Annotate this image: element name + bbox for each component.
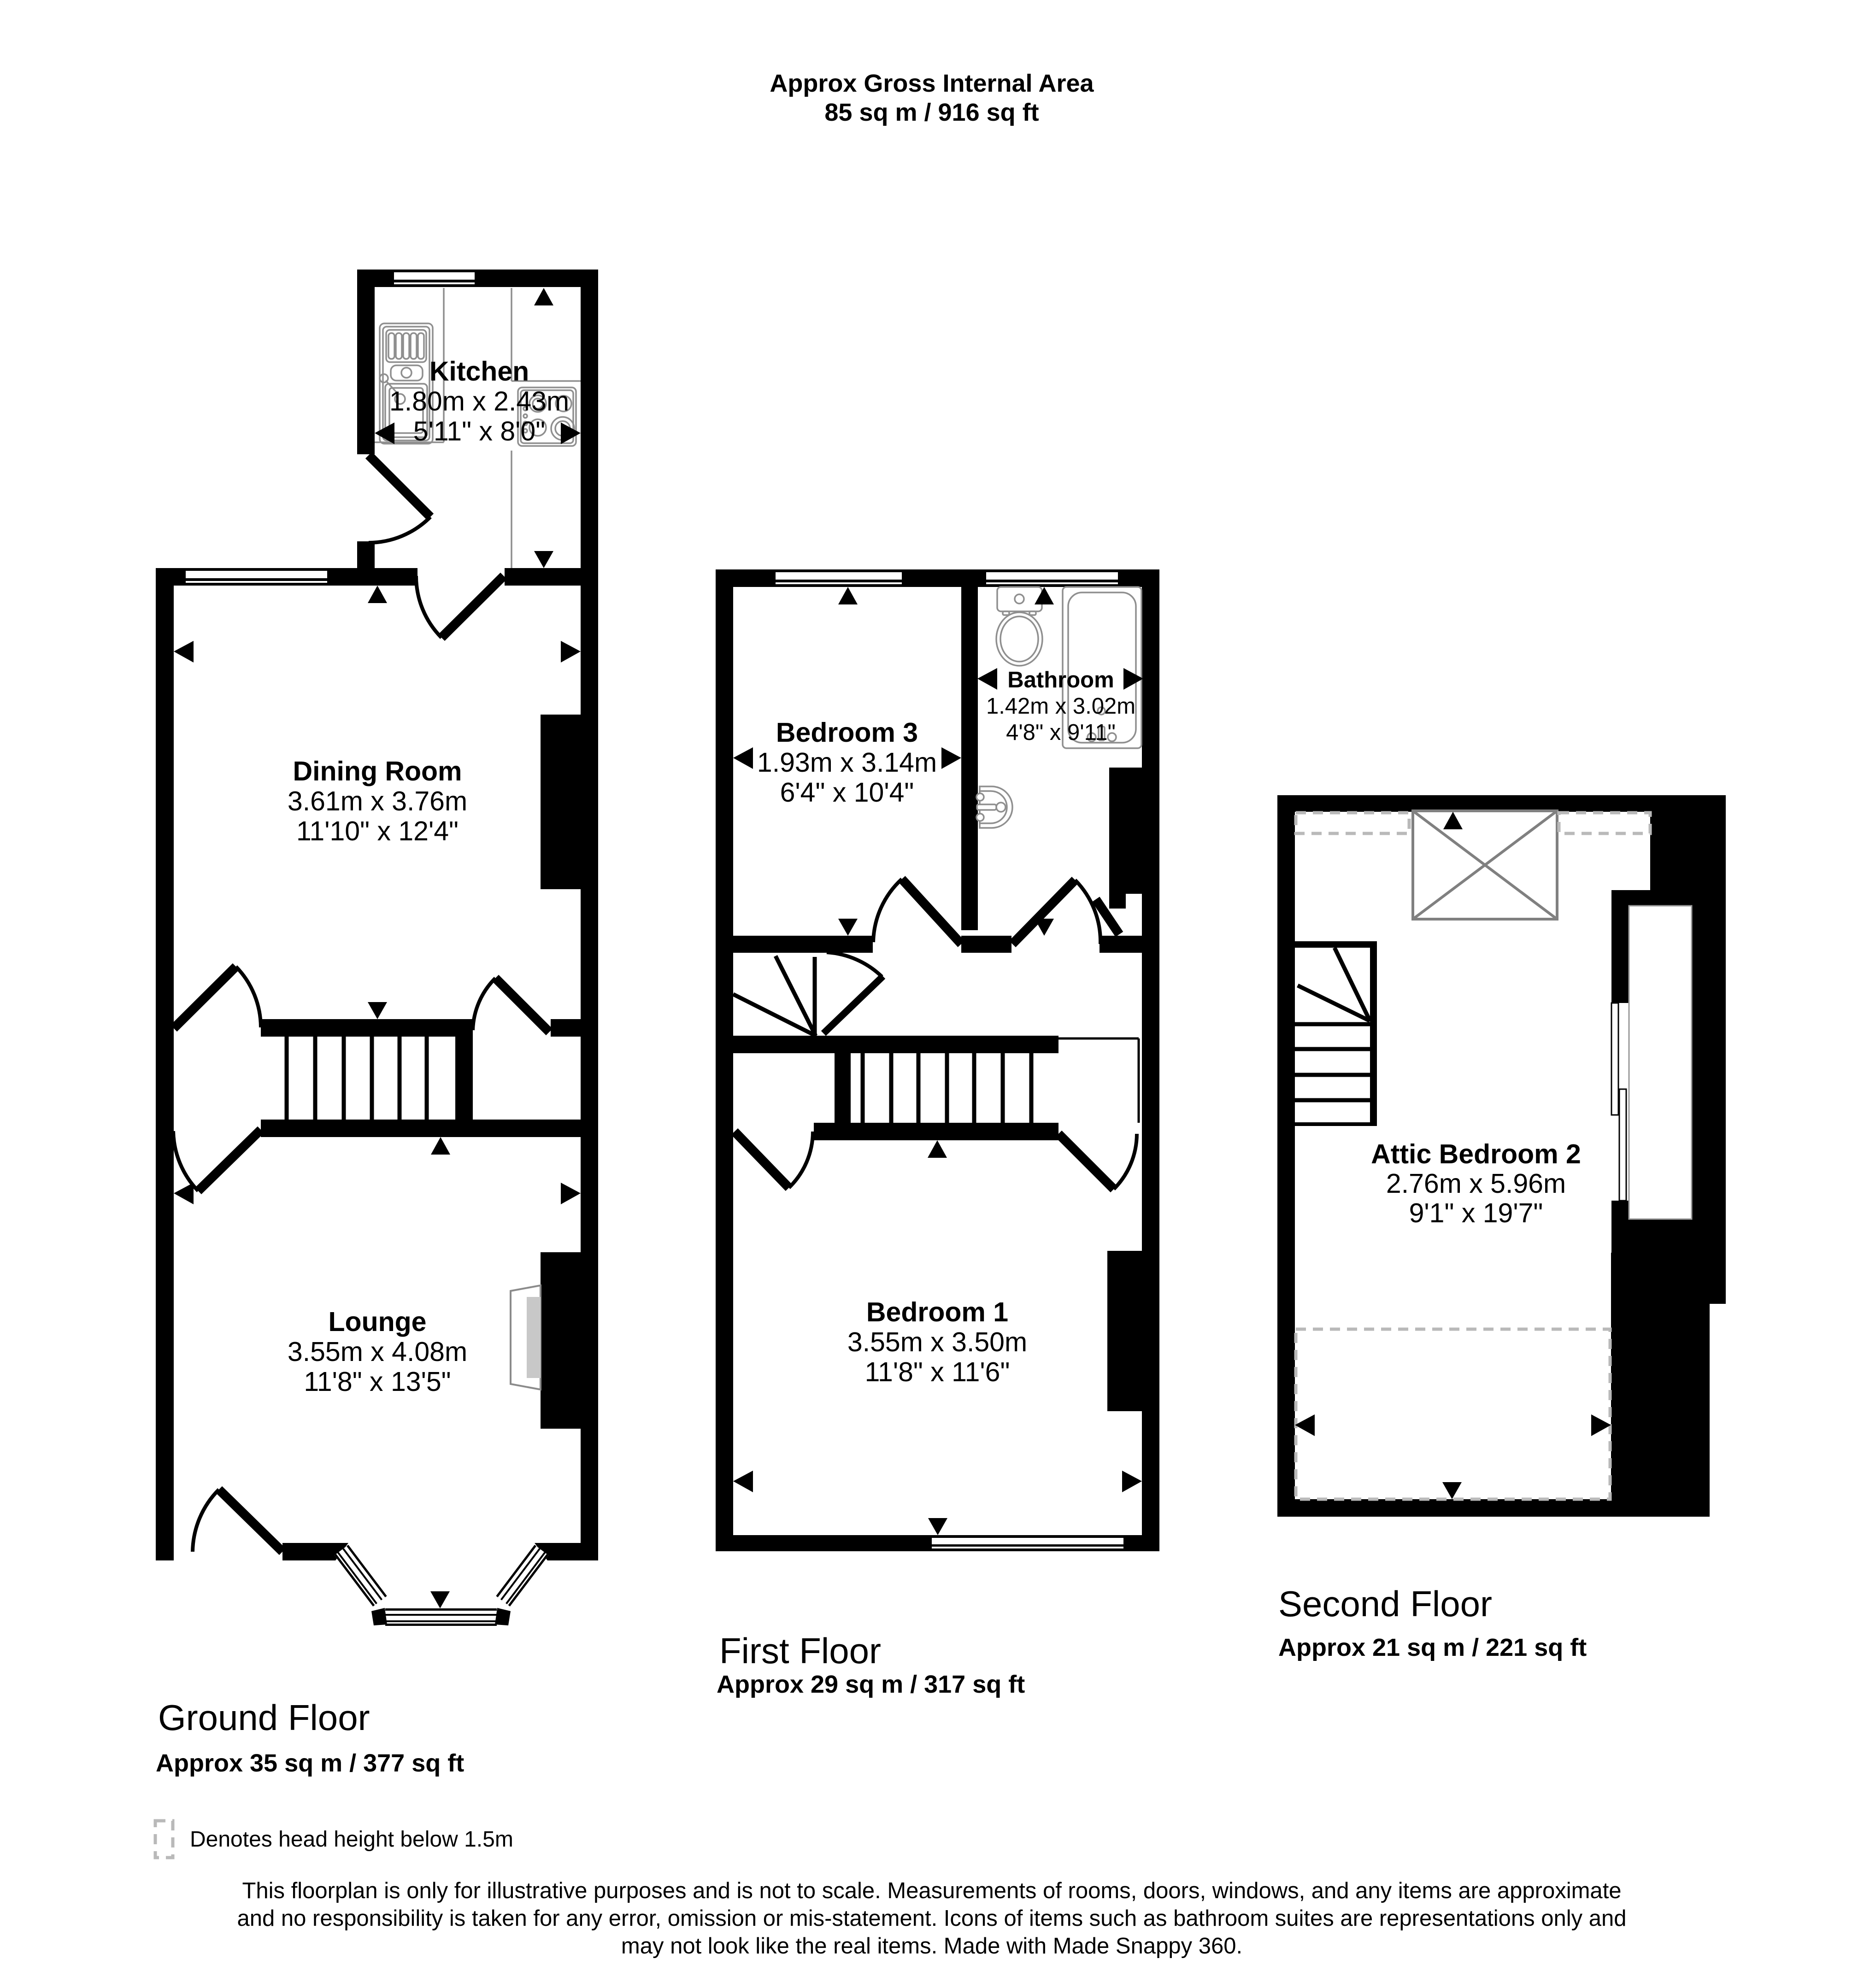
svg-text:Bathroom: Bathroom — [1007, 668, 1114, 692]
svg-text:11'10" x 12'4": 11'10" x 12'4" — [296, 816, 459, 846]
svg-text:Bedroom 1: Bedroom 1 — [866, 1297, 1008, 1327]
svg-text:85 sq m / 916 sq ft: 85 sq m / 916 sq ft — [824, 99, 1039, 126]
svg-text:3.55m x 3.50m: 3.55m x 3.50m — [847, 1327, 1027, 1357]
svg-text:11'8" x 11'6": 11'8" x 11'6" — [865, 1357, 1010, 1387]
svg-text:6'4" x 10'4": 6'4" x 10'4" — [780, 777, 914, 808]
svg-text:Bedroom 3: Bedroom 3 — [776, 717, 918, 748]
svg-text:Approx 29 sq m / 317 sq ft: Approx 29 sq m / 317 sq ft — [717, 1671, 1025, 1698]
svg-text:1.93m x 3.14m: 1.93m x 3.14m — [757, 747, 937, 778]
svg-text:5'11" x 8'0": 5'11" x 8'0" — [413, 416, 545, 446]
svg-text:This floorplan is only for ill: This floorplan is only for illustrative … — [242, 1878, 1621, 1903]
svg-text:may not look like the real ite: may not look like the real items. Made w… — [621, 1934, 1242, 1959]
svg-text:Ground Floor: Ground Floor — [158, 1697, 370, 1738]
svg-text:Lounge: Lounge — [328, 1307, 426, 1337]
svg-text:11'8" x 13'5": 11'8" x 13'5" — [304, 1366, 451, 1397]
svg-text:Approx 21 sq m / 221 sq ft: Approx 21 sq m / 221 sq ft — [1278, 1634, 1587, 1661]
svg-text:3.61m x 3.76m: 3.61m x 3.76m — [288, 786, 467, 816]
svg-text:Approx 35 sq m / 377 sq ft: Approx 35 sq m / 377 sq ft — [156, 1749, 464, 1777]
svg-text:4'8" x 9'11": 4'8" x 9'11" — [1006, 720, 1116, 745]
svg-text:Attic Bedroom 2: Attic Bedroom 2 — [1371, 1139, 1581, 1169]
svg-text:Second Floor: Second Floor — [1278, 1583, 1492, 1624]
svg-text:9'1" x 19'7": 9'1" x 19'7" — [1409, 1198, 1543, 1228]
svg-text:1.80m x 2.43m: 1.80m x 2.43m — [389, 386, 569, 416]
svg-text:Approx Gross Internal Area: Approx Gross Internal Area — [770, 70, 1094, 97]
svg-text:1.42m x 3.02m: 1.42m x 3.02m — [986, 694, 1135, 719]
svg-text:and no responsibility is taken: and no responsibility is taken for any e… — [237, 1906, 1627, 1931]
svg-text:Denotes head height below 1.5m: Denotes head height below 1.5m — [190, 1827, 513, 1852]
svg-text:2.76m x 5.96m: 2.76m x 5.96m — [1386, 1168, 1566, 1199]
svg-text:First Floor: First Floor — [719, 1630, 881, 1671]
svg-text:3.55m x 4.08m: 3.55m x 4.08m — [288, 1337, 467, 1367]
svg-text:Kitchen: Kitchen — [429, 356, 529, 387]
svg-text:Dining Room: Dining Room — [293, 756, 462, 786]
